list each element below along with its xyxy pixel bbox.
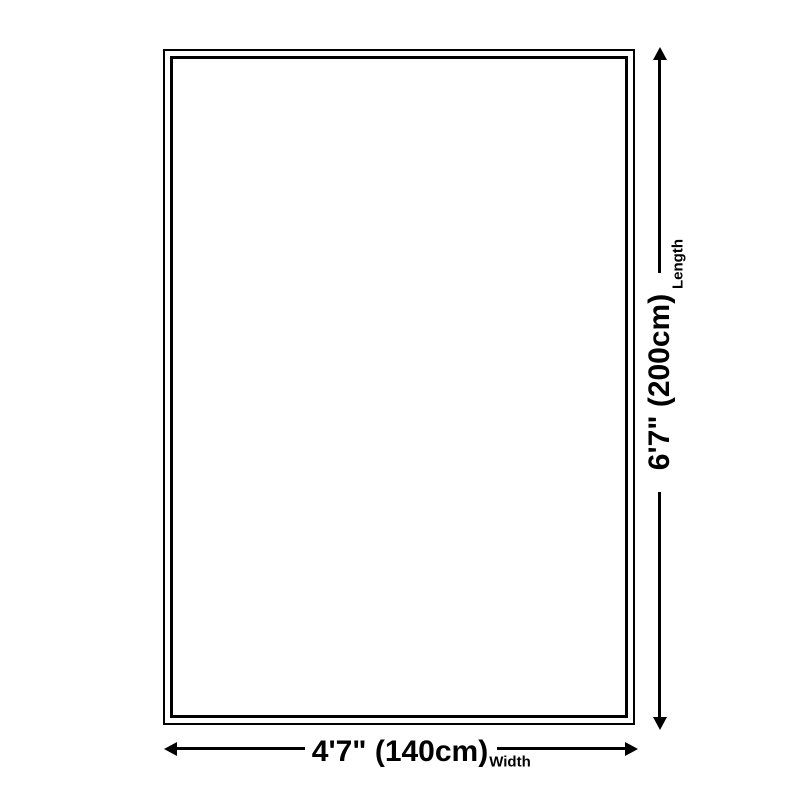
width-dimension-line-right: [497, 747, 625, 750]
arrow-right-icon: [625, 742, 638, 756]
rug-outline-outer: [163, 49, 635, 725]
dimension-diagram: Length 6'7" (200cm) 4'7" (140cm) Width: [0, 0, 800, 800]
width-dimension-line-left: [177, 747, 305, 750]
length-label: Length: [671, 239, 686, 289]
width-label: Width: [489, 755, 531, 770]
length-value: 6'7" (200cm): [645, 294, 675, 470]
length-dimension-line-top: [658, 59, 661, 273]
rug-outline-inner: [170, 56, 628, 718]
arrow-down-icon: [653, 717, 667, 730]
arrow-left-icon: [164, 742, 177, 756]
width-value: 4'7" (140cm): [312, 737, 488, 767]
length-dimension-line-bottom: [658, 492, 661, 717]
